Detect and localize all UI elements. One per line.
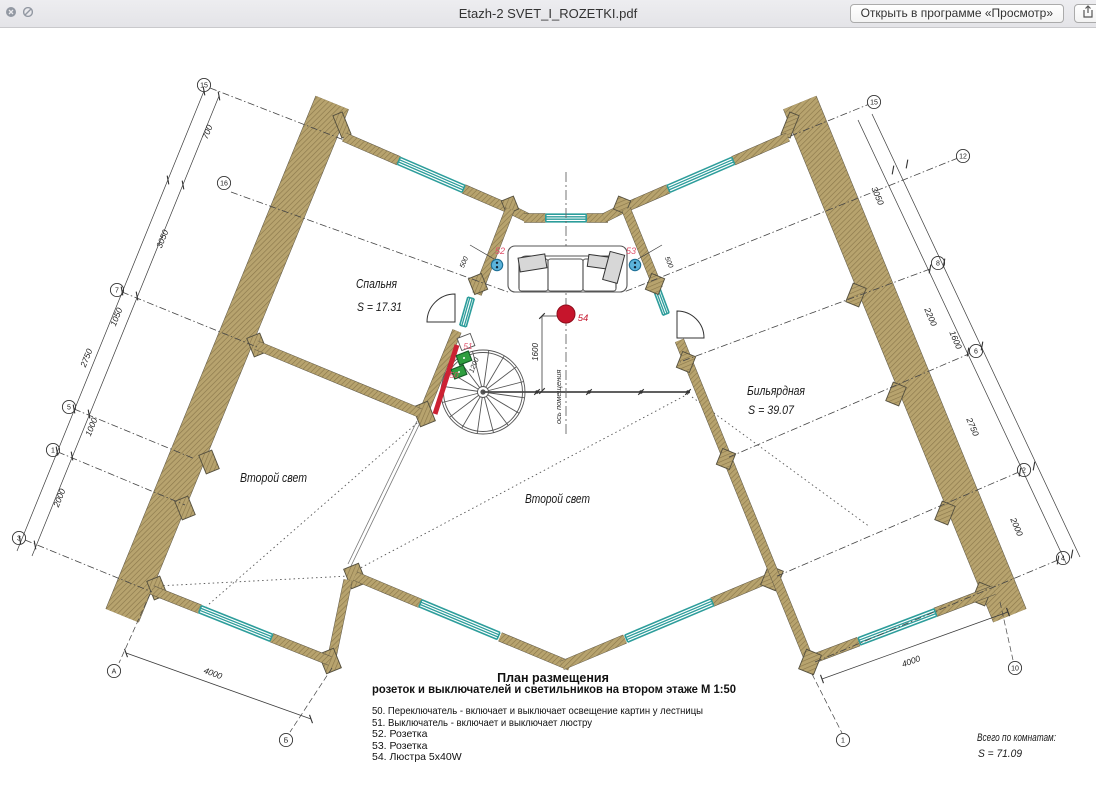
svg-text:51: 51: [464, 342, 473, 351]
svg-text:Спальня: Спальня: [356, 276, 397, 291]
svg-text:1: 1: [841, 737, 845, 744]
svg-text:52: 52: [495, 246, 505, 256]
svg-text:2000: 2000: [51, 487, 68, 509]
svg-text:700: 700: [200, 123, 215, 140]
svg-text:5: 5: [67, 404, 71, 411]
svg-text:3050: 3050: [154, 228, 170, 250]
svg-text:Всего по комнатам:: Всего по комнатам:: [977, 732, 1056, 744]
svg-text:6: 6: [974, 348, 978, 355]
svg-text:Второй свет: Второй свет: [240, 470, 307, 485]
svg-text:2200: 2200: [922, 305, 939, 327]
svg-text:500: 500: [663, 256, 674, 270]
svg-text:розеток и выключателей и свети: розеток и выключателей и светильников на…: [372, 682, 736, 696]
svg-text:12: 12: [959, 153, 967, 160]
svg-text:Второй свет: Второй свет: [525, 491, 590, 506]
svg-text:7: 7: [115, 287, 119, 294]
svg-text:2000: 2000: [1008, 515, 1025, 537]
svg-text:52. Розетка: 52. Розетка: [372, 728, 428, 740]
svg-text:53: 53: [626, 246, 636, 256]
svg-text:4000: 4000: [900, 653, 921, 669]
svg-text:1: 1: [51, 447, 55, 454]
svg-text:2750: 2750: [964, 415, 981, 437]
svg-text:Б: Б: [284, 737, 289, 744]
svg-text:3050: 3050: [869, 185, 886, 207]
svg-text:50: 50: [450, 371, 459, 380]
svg-text:16: 16: [220, 180, 228, 187]
svg-text:500: 500: [459, 256, 470, 270]
svg-text:1600: 1600: [947, 329, 964, 351]
svg-text:1600: 1600: [531, 343, 540, 361]
svg-text:8: 8: [936, 260, 940, 267]
svg-text:1050: 1050: [108, 306, 124, 328]
svg-text:50. Переключатель - включает и: 50. Переключатель - включает и выключает…: [372, 705, 703, 717]
svg-text:54: 54: [578, 313, 589, 324]
svg-text:S = 17.31: S = 17.31: [357, 300, 402, 314]
svg-text:1000: 1000: [83, 416, 99, 438]
svg-text:Бильярдная: Бильярдная: [747, 383, 805, 398]
svg-text:54. Люстра 5х40W: 54. Люстра 5х40W: [372, 751, 462, 763]
svg-text:15: 15: [870, 99, 878, 106]
svg-text:А: А: [112, 668, 117, 675]
svg-text:10: 10: [1011, 665, 1019, 672]
svg-text:4000: 4000: [202, 665, 223, 681]
svg-text:S = 39.07: S = 39.07: [748, 403, 795, 417]
svg-text:S = 71.09: S = 71.09: [978, 748, 1022, 760]
svg-text:ось помещения: ось помещения: [554, 370, 563, 424]
